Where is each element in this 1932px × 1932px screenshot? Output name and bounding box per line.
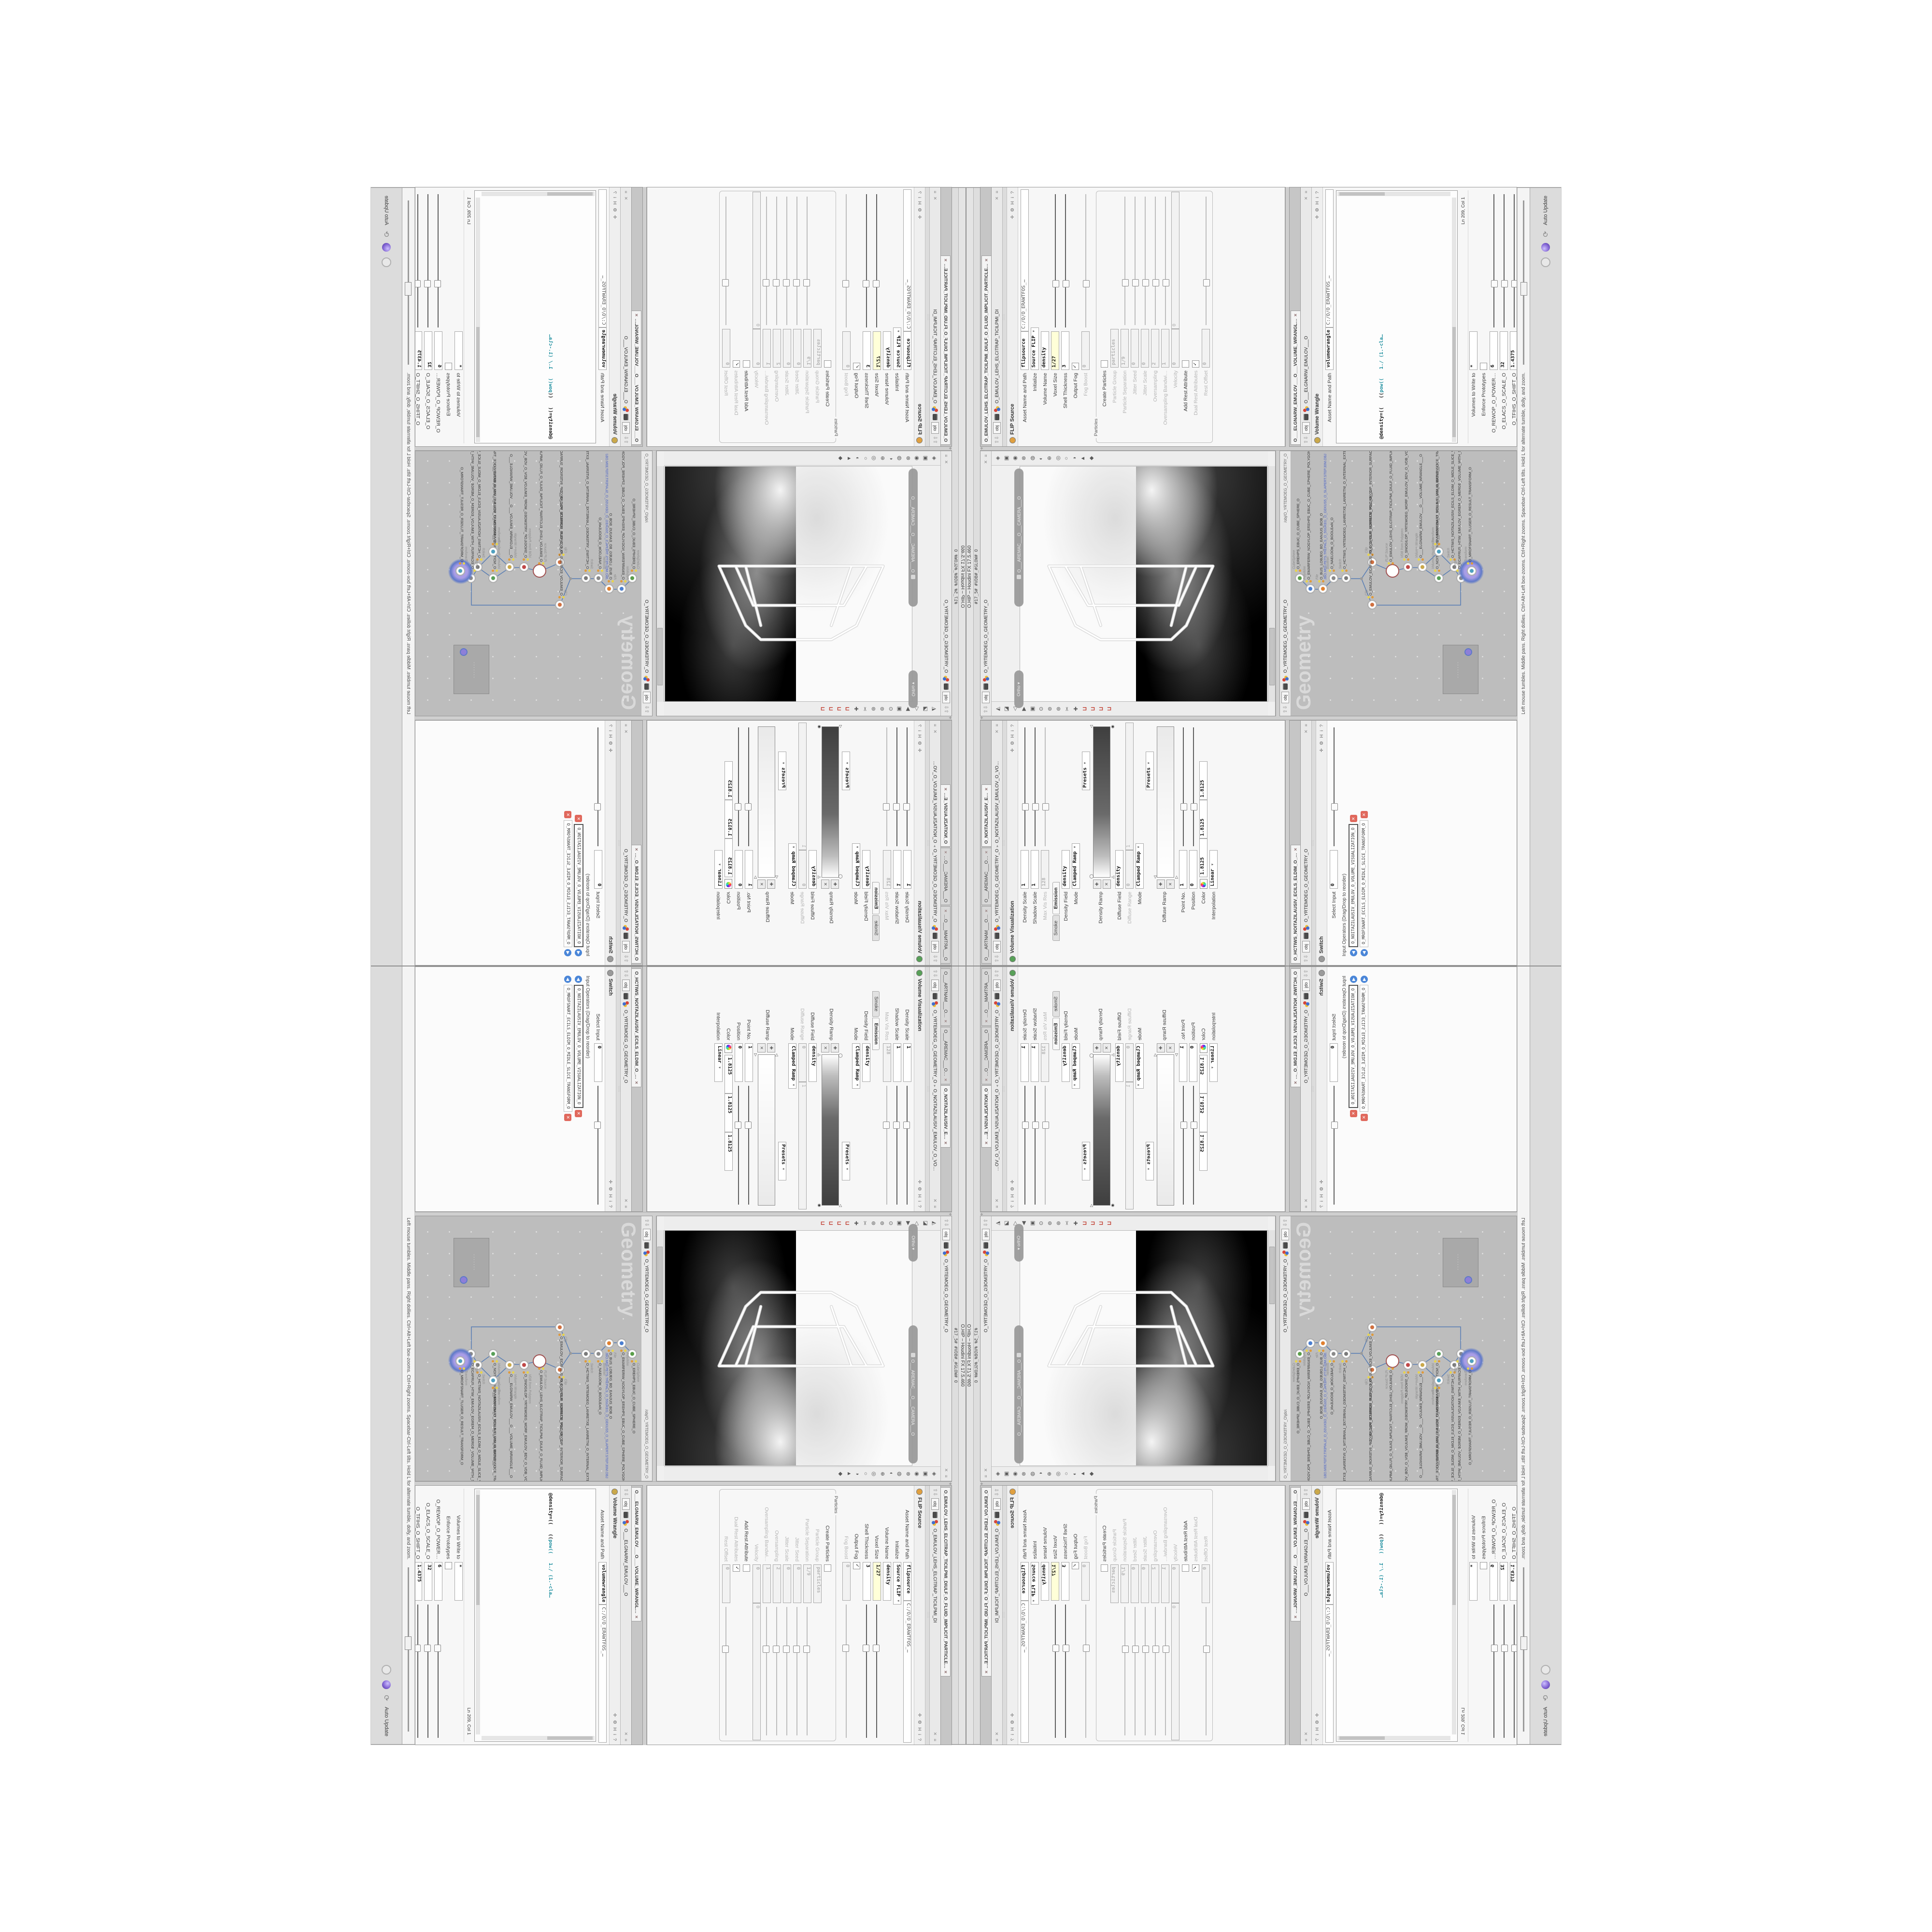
network-context-tab[interactable]: obj — [993, 422, 1001, 434]
window-menubar[interactable]: #17_5# #VDB#_#GLOW# O — [952, 188, 958, 966]
param-slider[interactable] — [777, 197, 778, 325]
ramp-marker-icon[interactable]: ◉ — [817, 1204, 822, 1207]
node-flag-icon[interactable] — [480, 1371, 483, 1374]
subtab-emission[interactable]: Emission — [872, 882, 880, 914]
close-icon[interactable]: ✕ — [634, 1615, 639, 1619]
node-flag-icon[interactable] — [608, 580, 610, 582]
param-slider[interactable] — [797, 1607, 798, 1735]
node-flag-icon[interactable] — [1407, 558, 1409, 561]
status-purple-icon[interactable] — [1541, 243, 1550, 252]
network-node[interactable]: Volume WrangleO___ELGNARW_EMULOV___O___V… — [1417, 562, 1428, 572]
slider-handle[interactable] — [1501, 280, 1508, 287]
viewport-right-toolbar[interactable]: ◈▣◉⊗◍◐⊕◎○◑▲◆ — [664, 1466, 940, 1481]
ramp-delete-button[interactable]: ✕ — [1103, 880, 1111, 889]
pane-tab[interactable]: O_NOITAZILAUSIV_E… ✕ — [941, 784, 951, 847]
param-header-icons[interactable]: ✛ ⚙ H i ? — [1315, 1713, 1320, 1742]
network-node[interactable]: VDB from PolygonsO_SNOGILOP_YRTEMOEG_MOR… — [1403, 1360, 1413, 1370]
slider-handle[interactable] — [595, 1122, 601, 1129]
param-field[interactable]: density — [1062, 1043, 1070, 1082]
param-slider[interactable] — [1206, 197, 1207, 325]
node-flag-icon[interactable] — [1333, 569, 1335, 572]
param-slider[interactable] — [1124, 1607, 1125, 1735]
pane-tab[interactable]: O___AREMAC___O… ✕ — [941, 848, 951, 905]
node-flag-icon[interactable] — [597, 569, 599, 572]
param-field[interactable]: Clamped Ramp — [1136, 843, 1144, 889]
breadcrumb-node[interactable]: O_YRTEMOEG_O_GEOMETRY_O — [1304, 1010, 1309, 1083]
node-flag-icon[interactable] — [526, 558, 529, 561]
node-flag-icon[interactable] — [1467, 1367, 1469, 1370]
param-field[interactable]: 0 — [798, 1043, 807, 1082]
ramp-marker-icon[interactable]: ◁ — [1153, 876, 1157, 879]
param-slider[interactable] — [877, 1605, 878, 1738]
slider-handle[interactable] — [735, 1122, 742, 1129]
param-field[interactable]: 0 — [1330, 850, 1338, 889]
scroll-grip[interactable]: ::::: — [925, 1486, 929, 1745]
camera-menu-pill[interactable]: O___AREMAC___O___CAMERA___O — [1014, 1325, 1023, 1463]
param-slider[interactable] — [428, 1605, 429, 1738]
node-flag-icon[interactable] — [459, 562, 461, 565]
slider-handle[interactable] — [1491, 1645, 1498, 1652]
node-circle[interactable] — [617, 584, 626, 594]
slider-handle[interactable] — [1032, 1122, 1039, 1129]
window-titlebar[interactable]: O.HIP – Houdini FX 17.5.460 — [966, 188, 974, 966]
network-node[interactable]: Volume VisualizationO_NOITAZILAUSIV_EMUL… — [1434, 1349, 1444, 1359]
breadcrumb-node-2[interactable]: O_NOITAZILAUSIV_EMULOV_O_VO… — [994, 761, 1000, 843]
color-swatch[interactable] — [725, 1043, 733, 1053]
param-checkbox[interactable] — [1072, 363, 1079, 370]
param-field[interactable]: * — [455, 1562, 463, 1601]
param-field-2[interactable]: C:/O/O_ERAWTFOS_… — [1021, 1601, 1029, 1743]
param-checkbox[interactable] — [445, 363, 452, 370]
slider-handle[interactable] — [1122, 279, 1129, 286]
node-circle[interactable] — [594, 1349, 603, 1359]
param-header-icons[interactable]: ✛ ⚙ H i ? — [608, 724, 613, 752]
slider-handle[interactable] — [1083, 1645, 1090, 1652]
subtab-smoke[interactable]: Smoke — [872, 915, 880, 941]
node-circle[interactable] — [1341, 573, 1351, 583]
node-circle[interactable] — [1403, 1360, 1413, 1370]
param-field-2[interactable]: 0 — [753, 192, 761, 329]
breadcrumb-node-2[interactable]: O_NOITAZILAUSIV_EMULOV_O_VO… — [933, 1089, 938, 1171]
pane-tab[interactable]: O___ARTNAM___O… ✕ — [941, 968, 951, 1026]
slider-handle[interactable] — [1142, 279, 1149, 286]
node-circle[interactable] — [455, 566, 465, 576]
ramp-add-button[interactable]: ✚ — [831, 1043, 839, 1052]
network-node[interactable]: BooleanO_NAELOOB_O_BOOLEAN_O — [1328, 1349, 1339, 1359]
param-slider[interactable] — [749, 727, 750, 846]
slider-handle[interactable] — [1501, 1645, 1508, 1652]
color-r-field[interactable]: 1.8125 — [724, 838, 733, 877]
slider-handle[interactable] — [773, 1646, 780, 1653]
slider-handle[interactable] — [894, 803, 900, 810]
node-flag-icon[interactable] — [1438, 569, 1440, 572]
node-flag-icon[interactable] — [1329, 1360, 1331, 1363]
ramp-marker-icon[interactable]: ◯ — [1089, 874, 1094, 879]
asset-name-field[interactable]: volumewrangle — [598, 327, 607, 370]
param-field[interactable]: 1/9 — [1121, 329, 1129, 368]
color-b-field[interactable]: 1.8125 — [724, 761, 733, 800]
slider-handle[interactable] — [1052, 1645, 1059, 1652]
node-flag-icon[interactable] — [1295, 1360, 1297, 1363]
node-flag-icon[interactable] — [496, 543, 498, 545]
node-circle[interactable] — [1467, 1356, 1477, 1366]
close-icon[interactable]: ✕ — [943, 1078, 948, 1081]
node-flag-icon[interactable] — [1434, 1387, 1436, 1389]
subtab-emission[interactable]: Emission — [872, 1018, 880, 1050]
jump-to-node-button[interactable]: ◀ — [565, 976, 572, 983]
node-circle[interactable] — [555, 600, 565, 610]
node-flag-icon[interactable] — [492, 1360, 494, 1363]
node-circle[interactable] — [488, 547, 498, 556]
up-down-arrows-icon[interactable]: ⇧⇩ — [983, 705, 989, 713]
close-icon[interactable]: ✕ — [984, 1670, 989, 1674]
param-slider[interactable] — [846, 1605, 847, 1738]
param-field[interactable]: Presets — [778, 1142, 786, 1180]
remove-input-button[interactable]: ✕ — [575, 815, 582, 822]
remove-input-button[interactable]: ✕ — [575, 1110, 582, 1117]
network-context-tab[interactable]: obj — [993, 941, 1001, 952]
param-checkbox[interactable] — [1182, 1564, 1189, 1572]
viewport-display-icons[interactable]: ◈▣◉⊗◍◐⊕◎○◑▲◆ — [835, 1471, 938, 1477]
param-slider[interactable] — [1206, 1607, 1207, 1735]
param-checkbox[interactable] — [1101, 1564, 1108, 1572]
param-field[interactable]: Clamped Ramp — [852, 1043, 860, 1089]
node-flag-icon[interactable] — [1367, 596, 1370, 598]
slider-handle[interactable] — [1142, 1646, 1149, 1653]
status-gray-icon[interactable] — [1541, 1665, 1550, 1675]
node-flag-icon[interactable] — [492, 1387, 494, 1389]
network-node[interactable]: VDB from PolygonsO_SNOGILOP_YRTEMOEG_MOR… — [519, 562, 529, 572]
slider-handle[interactable] — [723, 279, 729, 286]
ramp-delete-button[interactable]: ✕ — [821, 1043, 829, 1052]
node-flag-icon[interactable] — [1438, 1387, 1440, 1389]
up-down-arrows-icon[interactable]: ⇧⇩ — [624, 954, 629, 963]
node-circle[interactable] — [1418, 1360, 1427, 1370]
param-field[interactable]: 1.4375 — [1510, 1562, 1517, 1601]
jump-to-node-button[interactable]: ◀ — [565, 949, 572, 956]
network-node[interactable]: Volume VisualizationO_NOITAZILAUSIV_EMUL… — [488, 573, 498, 583]
node-flag-icon[interactable] — [611, 580, 614, 582]
network-node[interactable]: BooleanO_NAELOOB_O_BOOLEAN_O — [593, 573, 604, 583]
node-flag-icon[interactable] — [1449, 1371, 1452, 1374]
breadcrumb-node[interactable]: O_YRTEMOEG_O_GEOMETRY_O — [624, 849, 629, 923]
asset-path-field[interactable]: C:/O/O_ERAWTFOS_… — [1325, 189, 1334, 327]
pane-tab[interactable]: O___ELGNARW_EMULOV___O___VOLUME_WRANGL… … — [632, 1487, 641, 1621]
node-flag-icon[interactable] — [463, 1367, 465, 1370]
param-slider[interactable] — [1055, 1605, 1056, 1738]
viewport-display-icons[interactable]: ◈▣◉⊗◍◐⊕◎○◑▲◆ — [994, 455, 1097, 461]
subtab-smoke[interactable]: Smoke — [872, 991, 880, 1017]
close-icon[interactable]: ✕ — [943, 787, 948, 791]
network-node[interactable]: SwitchO_HCTIWS_YRTEMOEG_LANRETXE_LANRETN… — [581, 1349, 591, 1359]
param-field[interactable]: 1.4375 — [415, 331, 422, 370]
pane-tab[interactable]: O___ELGNARW_EMULOV___O___VOLUME_WRANGL… … — [632, 311, 641, 445]
param-field[interactable]: density — [809, 1043, 817, 1082]
close-icon[interactable]: ✕ — [1293, 1615, 1298, 1619]
slider-handle[interactable] — [904, 1122, 910, 1129]
slider-handle[interactable] — [1132, 279, 1139, 286]
param-slider[interactable] — [897, 1086, 898, 1205]
ramp-delete-button[interactable]: ✕ — [1166, 1043, 1175, 1052]
param-field[interactable]: Presets — [778, 752, 786, 790]
auto-update-label[interactable]: Auto Update — [1543, 196, 1548, 225]
network-node[interactable]: ClipO_EMULOV_ECAFRUS_PILC_O_CLIP_SURFACE… — [1367, 599, 1378, 610]
network-node[interactable]: TransformO_MROFSNART_TLUSER_O_RESULT_TRA… — [455, 1356, 466, 1366]
node-flag-icon[interactable] — [480, 558, 483, 561]
node-flag-icon[interactable] — [1367, 1334, 1370, 1336]
param-field[interactable]: particles — [1110, 329, 1119, 368]
param-field[interactable]: 3 — [863, 1562, 871, 1601]
ramp-delete-button[interactable]: ✕ — [757, 880, 766, 889]
node-flag-icon[interactable] — [1295, 569, 1297, 572]
param-field[interactable]: 1/9 — [803, 1564, 811, 1603]
auto-update-label[interactable]: Auto Update — [1543, 1707, 1548, 1736]
node-flag-icon[interactable] — [1438, 1360, 1440, 1363]
param-field-2[interactable]: 0 — [1171, 192, 1179, 329]
viewport-render[interactable]: O___AREMAC___O___CAMERA___O Ortho ▾ — [665, 466, 912, 702]
viewport-scrollbar[interactable] — [1268, 1230, 1275, 1466]
slider-handle[interactable] — [723, 1646, 729, 1653]
pane-tab[interactable]: O___ARTNAM___O… ✕ — [941, 906, 951, 964]
network-node[interactable]: SwitchO_HCTIWS_YRTEMOEG_LANRETXE_LANRETN… — [1341, 1349, 1351, 1359]
window-titlebar[interactable]: O.HIP – Houdini FX 17.5.460 — [966, 966, 974, 1744]
param-field[interactable]: 0 — [793, 1564, 801, 1603]
param-slider[interactable] — [428, 194, 429, 327]
slider-handle[interactable] — [873, 280, 880, 287]
network-context-tab[interactable]: obj — [622, 1498, 630, 1510]
pane-corner-icons[interactable]: ✕ ≡ — [994, 190, 1000, 200]
node-flag-icon[interactable] — [1388, 562, 1390, 565]
param-slider[interactable] — [1045, 1086, 1046, 1205]
playbar-handle[interactable] — [405, 282, 412, 296]
node-flag-icon[interactable] — [1371, 596, 1374, 598]
pane-corner-icons[interactable]: ✕ ≡ — [1304, 190, 1309, 200]
node-circle[interactable] — [1386, 564, 1399, 578]
slider-handle[interactable] — [745, 803, 752, 810]
param-field[interactable]: Linear — [1209, 1043, 1218, 1082]
slider-handle[interactable] — [783, 1646, 790, 1653]
network-context-tab[interactable]: obj — [931, 980, 939, 991]
network-node[interactable]: PolyWireO_EMARFERIW_NOGYLOP_EREHPS_EBUC_… — [1305, 1338, 1316, 1349]
remove-input-button[interactable]: ✕ — [1350, 1110, 1357, 1117]
node-flag-icon[interactable] — [562, 1334, 565, 1336]
pane-corner-icons[interactable]: ✕ ≡ — [994, 1199, 1000, 1209]
param-field[interactable]: 0 — [722, 329, 730, 368]
node-flag-icon[interactable] — [620, 1350, 623, 1352]
param-slider[interactable] — [787, 1607, 788, 1735]
status-purple-icon[interactable] — [382, 1680, 391, 1689]
input-operator-name[interactable]: O_MROFSNART_ECILS_ELDIM_O_MIDLE_SLICE_TR… — [564, 820, 572, 947]
ramp-add-button[interactable]: ✚ — [1157, 880, 1165, 889]
param-field[interactable]: 1/27 — [873, 331, 881, 370]
param-slider[interactable] — [598, 727, 599, 846]
code-vertical-scrollbar[interactable] — [1337, 1736, 1450, 1740]
slider-handle[interactable] — [1083, 280, 1090, 287]
remove-input-button[interactable]: ✕ — [1361, 1114, 1368, 1121]
param-field-2[interactable]: 1 — [1125, 723, 1134, 850]
slider-handle[interactable] — [1022, 1122, 1029, 1129]
param-slider[interactable] — [1514, 194, 1515, 327]
density-ramp-gradient[interactable]: ◯ ◁ ◉ △ — [822, 726, 839, 878]
viewport-left-toolbar[interactable]: ◭◪◁▶▣⊙⊚⊛✂✚ ⊔⊔⊔⊔ — [664, 1216, 940, 1231]
param-field[interactable]: 0 — [798, 850, 807, 889]
param-field[interactable]: 128 — [883, 850, 891, 889]
param-field[interactable]: Clamped Ramp — [788, 1043, 796, 1089]
param-checkbox[interactable] — [824, 1564, 831, 1572]
param-slider[interactable] — [1035, 1086, 1036, 1205]
param-field[interactable]: Linear — [714, 850, 723, 889]
network-node[interactable]: TransformO_MROFSNART_TLUSER_O_RESULT_TRA… — [1466, 1356, 1477, 1366]
up-down-arrows-icon[interactable]: ⇧⇩ — [624, 1488, 629, 1496]
param-field[interactable]: 1/27 — [1051, 1562, 1059, 1601]
network-node[interactable]: BooleanO_NAELOOB_O_BOOLEAN_O — [1328, 573, 1339, 583]
slider-handle[interactable] — [1042, 803, 1049, 810]
param-slider[interactable] — [1035, 727, 1036, 846]
param-field[interactable]: Clamped Ramp — [1072, 843, 1080, 889]
node-flag-icon[interactable] — [492, 543, 494, 545]
network-node[interactable]: PolyWireO_EMARFERIW_NOGYLOP_EREHPS_EBUC_… — [616, 583, 627, 594]
network-node[interactable]: FileO_BUS_LOBJEG_BD_EANJUS_BOB_O JBO.M03… — [1318, 1338, 1328, 1349]
node-flag-icon[interactable] — [1333, 1360, 1335, 1363]
node-circle[interactable] — [505, 562, 514, 572]
param-slider[interactable] — [1165, 197, 1166, 325]
param-slider[interactable] — [907, 1086, 908, 1205]
scroll-grip[interactable]: ::::: — [616, 721, 620, 965]
breadcrumb-node[interactable]: O_YRTEMOEG_O_GEOMETRY_O — [624, 1010, 629, 1083]
close-icon[interactable]: ✕ — [984, 787, 989, 791]
param-checkbox[interactable] — [1480, 1562, 1487, 1569]
ortho-pill[interactable]: Ortho ▾ — [1014, 670, 1023, 708]
jump-to-node-button[interactable]: ◀ — [1350, 976, 1357, 983]
ramp-marker-icon[interactable]: ◁ — [775, 1053, 779, 1056]
param-slider[interactable] — [438, 194, 439, 327]
param-field[interactable]: 3 — [1061, 1562, 1069, 1601]
density-ramp-gradient[interactable]: ◯ ◁ ◉ △ — [1093, 1054, 1110, 1206]
network-context-tab[interactable]: obj — [942, 692, 950, 703]
window-menubar[interactable]: #17_5# #VDB#_#GLOW# O — [952, 966, 958, 1744]
snap-magnet-icons[interactable]: ⊔⊔⊔⊔ — [818, 1220, 851, 1226]
node-circle[interactable] — [519, 562, 529, 572]
up-down-arrows-icon[interactable]: ⇧⇩ — [994, 1488, 1000, 1496]
param-field[interactable]: 0 — [735, 850, 743, 889]
ortho-pill[interactable]: Ortho ▾ — [909, 670, 918, 708]
network-node[interactable]: SwitchO_HCTIWS_YRTEMOEG_LANRETXE_LANRETN… — [581, 573, 591, 583]
close-icon[interactable]: ✕ — [943, 1020, 948, 1023]
refresh-icon[interactable]: ⟳ — [382, 231, 391, 237]
param-field[interactable]: 0 — [1189, 1043, 1197, 1082]
viewport-tool-icons[interactable]: ◭◪◁▶▣⊙⊚⊛✂✚ — [994, 1220, 1081, 1226]
pane-corner-icons[interactable]: ✕ ≡ — [994, 723, 1000, 733]
param-header-icons[interactable]: ✛ ⚙ H i ? — [917, 724, 923, 752]
param-header-icons[interactable]: ✛ ⚙ H i ? — [917, 190, 923, 219]
param-field[interactable]: Clamped Ramp — [1072, 1043, 1080, 1089]
close-icon[interactable]: ✕ — [943, 1141, 948, 1145]
remove-input-button[interactable]: ✕ — [1361, 811, 1368, 818]
param-slider[interactable] — [1514, 1605, 1515, 1738]
code-vertical-scrollbar[interactable] — [1337, 192, 1450, 196]
param-field[interactable]: 1 — [1021, 850, 1029, 889]
ramp-marker-icon[interactable]: ▷ — [753, 1053, 758, 1056]
remove-input-button[interactable]: ✕ — [565, 1114, 572, 1121]
node-circle[interactable] — [604, 1338, 614, 1348]
network-node[interactable]: FileO_BUS_LOBJEG_BD_EANJUS_BOB_O JBO.M03… — [604, 583, 614, 594]
param-slider[interactable] — [887, 727, 888, 846]
pane-corner-icons[interactable]: ✕ ≡ — [1304, 723, 1309, 733]
color-swatch[interactable] — [1200, 1043, 1207, 1053]
param-slider[interactable] — [749, 1086, 750, 1205]
viewport-scrollbar[interactable] — [657, 1230, 664, 1466]
playbar-frame-slider[interactable] — [408, 1567, 409, 1732]
up-down-arrows-icon[interactable]: ⇧⇩ — [1304, 1488, 1309, 1496]
network-node[interactable]: Volume WrangleO___ELGNARW_EMULOV___O___V… — [504, 562, 515, 572]
network-node[interactable]: FLIP SourceO_EMULOV_LEHS_ELCITRAP_TICILP… — [534, 566, 545, 576]
code-horizontal-scrollbar[interactable] — [476, 1490, 480, 1734]
slider-handle[interactable] — [425, 280, 431, 287]
node-flag-icon[interactable] — [1299, 569, 1301, 572]
network-node[interactable]: VDB from PolygonsO_SNOGILOP_YRTEMOEG_MOR… — [519, 1360, 529, 1370]
ramp-add-button[interactable]: ✚ — [767, 880, 775, 889]
param-field[interactable]: Source FLIP — [893, 1562, 901, 1605]
jump-to-node-button[interactable]: ◀ — [1361, 949, 1368, 956]
breadcrumb-node[interactable]: O_YRTEMOEG_O_GEOMETRY_O — [933, 849, 938, 923]
node-flag-icon[interactable] — [473, 1360, 476, 1363]
node-flag-icon[interactable] — [1345, 1360, 1348, 1363]
param-field[interactable]: 0 — [1330, 1043, 1338, 1082]
param-field[interactable]: 1 — [903, 850, 911, 889]
node-flag-icon[interactable] — [584, 1360, 587, 1363]
pane-tab[interactable]: O___AREMAC___O… ✕ — [941, 1027, 951, 1084]
viewport-display-icons[interactable]: ◈▣◉⊗◍◐⊕◎○◑▲◆ — [994, 1471, 1097, 1477]
node-circle[interactable] — [505, 1360, 514, 1370]
pane-corner-icons[interactable]: ✕ ≡ — [933, 723, 938, 733]
param-checkbox[interactable] — [1182, 360, 1189, 368]
node-flag-icon[interactable] — [588, 569, 591, 572]
snap-magnet-icons[interactable]: ⊔⊔⊔⊔ — [1081, 706, 1114, 712]
param-field[interactable]: Linear — [1209, 850, 1218, 889]
param-slider[interactable] — [1135, 1607, 1136, 1735]
param-slider[interactable] — [1193, 727, 1194, 846]
ramp-marker-icon[interactable]: ◁ — [1089, 725, 1094, 728]
node-circle[interactable] — [519, 1360, 529, 1370]
node-flag-icon[interactable] — [1388, 1367, 1390, 1370]
node-circle[interactable] — [1329, 1349, 1338, 1359]
param-field[interactable]: 0 — [1131, 329, 1139, 368]
pane-corner-icons[interactable]: ✕ ≡ — [933, 1199, 938, 1209]
color-b-field[interactable]: 1.8125 — [1199, 761, 1207, 800]
param-checkbox[interactable] — [824, 360, 831, 368]
param-field[interactable]: density — [862, 850, 870, 889]
pane-tab[interactable]: O___ARTNAM___O… ✕ — [981, 968, 991, 1026]
node-flag-icon[interactable] — [496, 1387, 498, 1389]
param-field[interactable]: flipsource — [1021, 331, 1029, 370]
slider-handle[interactable] — [873, 1645, 880, 1652]
network-node[interactable]: Volume VisualizationO_NOITAZILAUSIV_EMUL… — [1434, 573, 1444, 583]
node-flag-icon[interactable] — [597, 1360, 599, 1363]
node-flag-icon[interactable] — [1403, 558, 1406, 561]
status-purple-icon[interactable] — [1541, 1680, 1550, 1689]
slider-handle[interactable] — [1203, 1646, 1210, 1653]
close-icon[interactable]: ✕ — [634, 848, 639, 851]
node-flag-icon[interactable] — [635, 569, 637, 572]
pane-tab[interactable]: O_EMULOV_LEHS_ELCITRAP_TICILPMI_DIULF_O_… — [981, 256, 991, 445]
node-flag-icon[interactable] — [1322, 1350, 1324, 1352]
param-slider[interactable] — [807, 1607, 808, 1735]
diffuse-ramp-gradient[interactable]: ◁ ▷ — [758, 726, 775, 878]
node-circle[interactable] — [1434, 1349, 1444, 1359]
ramp-add-button[interactable]: ✚ — [1157, 1043, 1165, 1052]
node-circle[interactable] — [581, 573, 591, 583]
breadcrumb-node[interactable]: O_YRTEMOEG_O_GEOMETRY_O — [994, 1010, 1000, 1083]
